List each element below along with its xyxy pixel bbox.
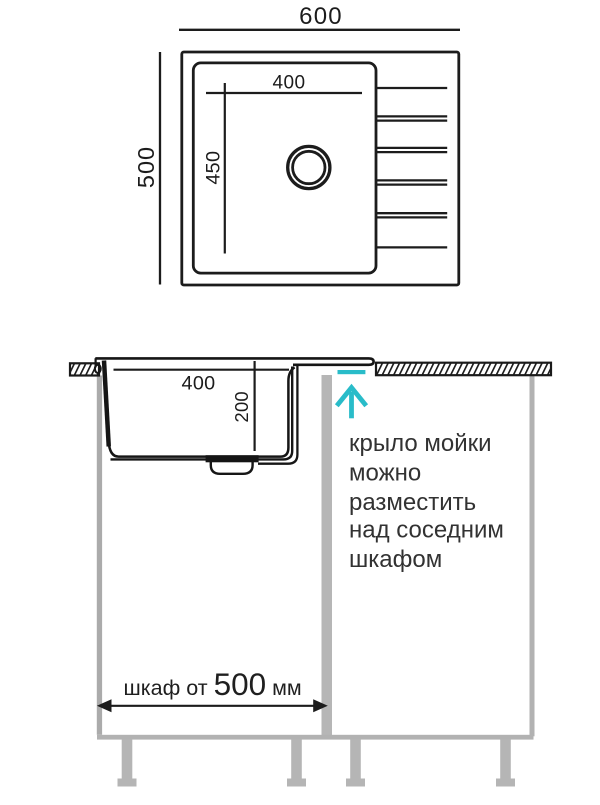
svg-text:можно: можно [349,460,421,487]
svg-text:над соседним: над соседним [349,517,504,544]
svg-text:шкаф от 500 мм: шкаф от 500 мм [124,666,302,702]
svg-text:400: 400 [273,73,306,94]
svg-text:450: 450 [202,151,224,185]
svg-text:500: 500 [133,146,159,188]
svg-text:200: 200 [231,391,252,422]
svg-text:400: 400 [182,373,216,395]
svg-text:разместить: разместить [349,489,476,516]
svg-text:600: 600 [299,3,343,30]
svg-text:шкафом: шкафом [349,546,442,573]
svg-text:крыло мойки: крыло мойки [349,430,492,457]
